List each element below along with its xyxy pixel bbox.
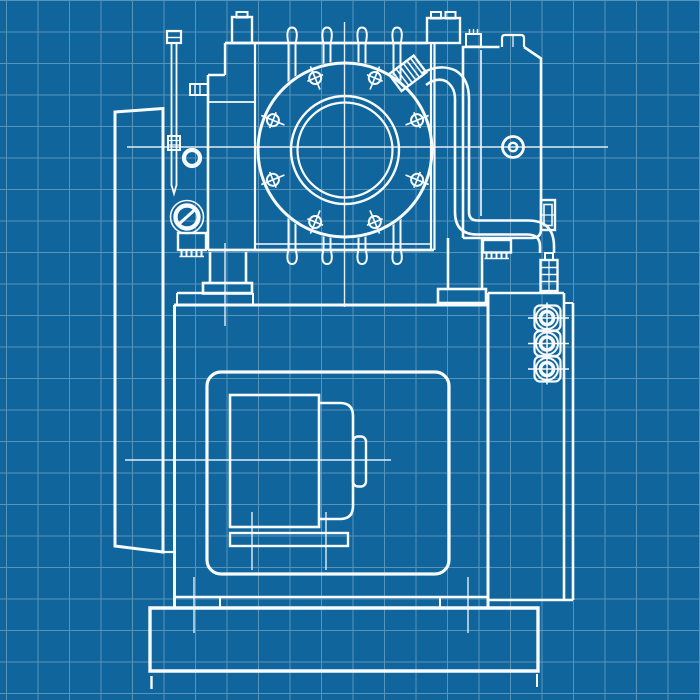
oil-level-sight-glass xyxy=(171,201,204,234)
blueprint-grid xyxy=(0,0,700,700)
blueprint-canvas xyxy=(0,0,700,700)
blueprint-drawing xyxy=(0,0,700,700)
